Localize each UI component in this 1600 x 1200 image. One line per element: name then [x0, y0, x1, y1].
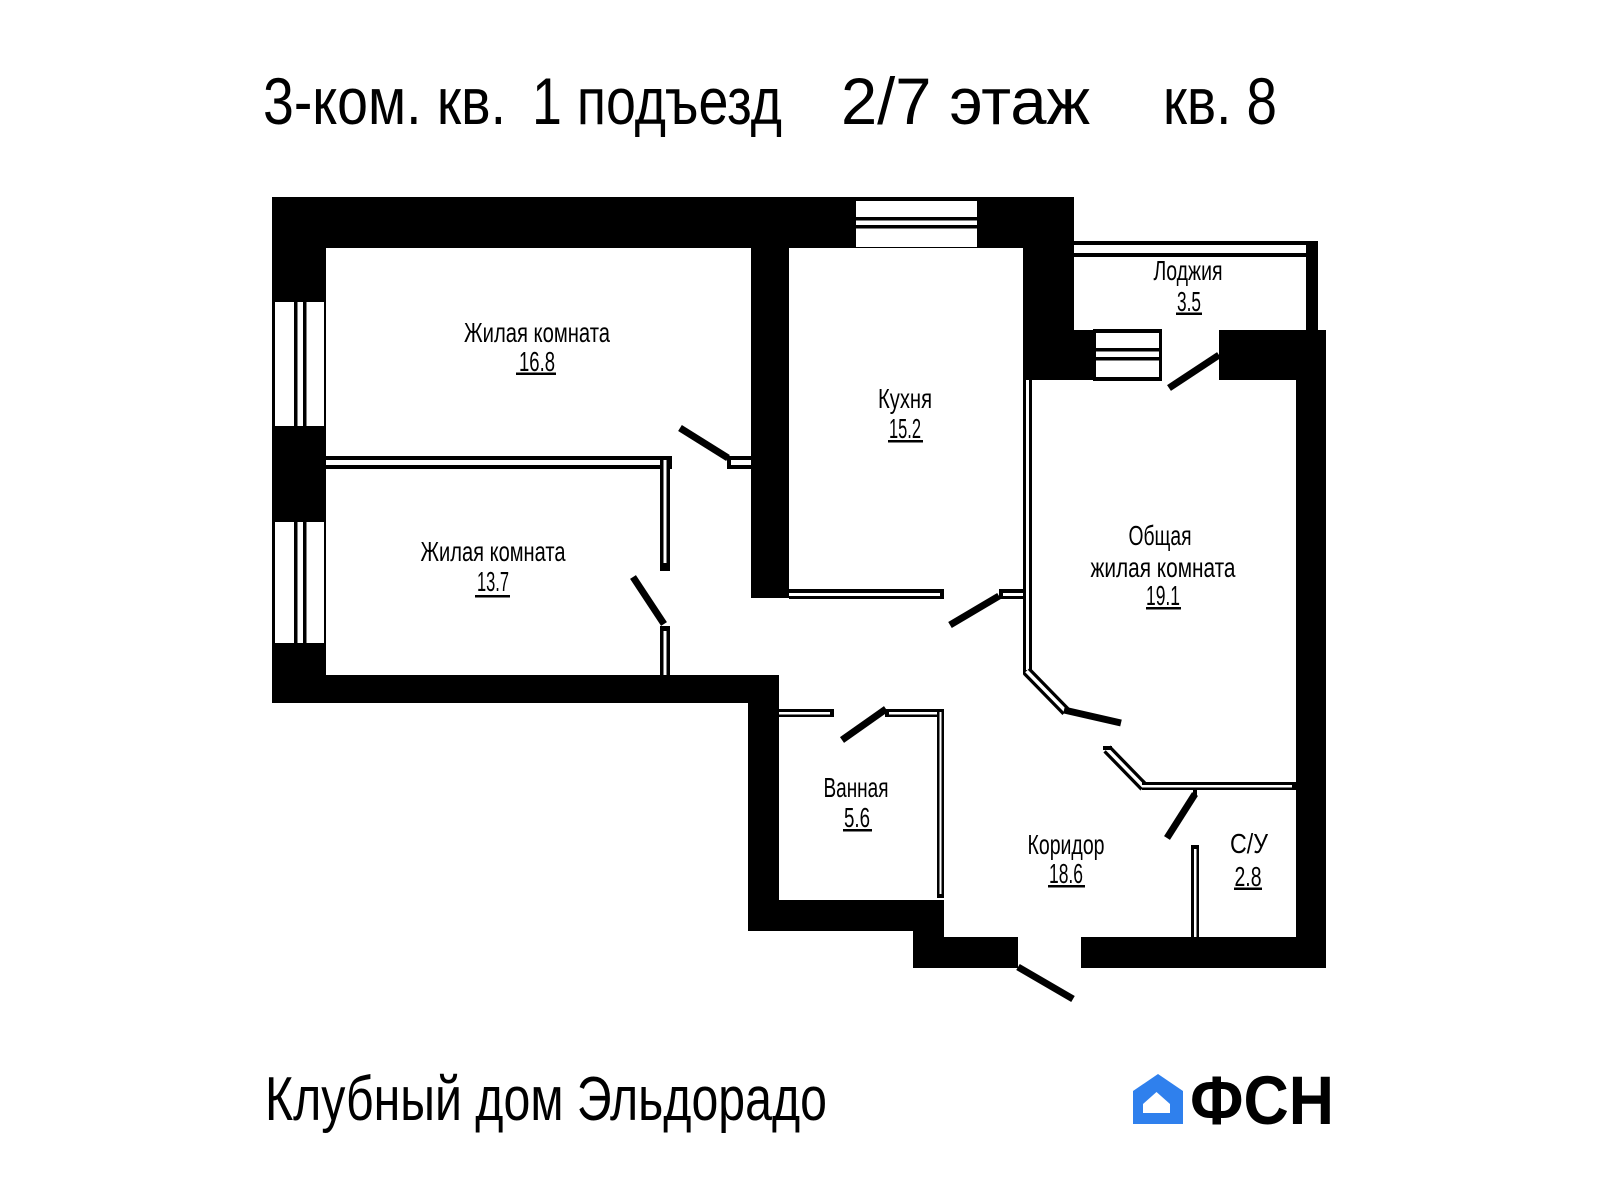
svg-text:1 подъезд: 1 подъезд	[532, 64, 782, 138]
svg-text:Ванная: Ванная	[824, 772, 889, 803]
svg-text:2/7 этаж: 2/7 этаж	[841, 64, 1090, 138]
svg-text:Кухня: Кухня	[878, 383, 932, 414]
svg-text:3.5: 3.5	[1177, 286, 1201, 317]
svg-text:Жилая комната: Жилая комната	[421, 536, 566, 567]
svg-text:3-ком. кв.: 3-ком. кв.	[263, 64, 506, 138]
svg-text:Лоджия: Лоджия	[1154, 255, 1223, 286]
svg-text:ФСН: ФСН	[1190, 1062, 1334, 1139]
svg-text:С/У: С/У	[1230, 828, 1268, 859]
svg-text:16.8: 16.8	[519, 346, 555, 377]
svg-text:жилая комната: жилая комната	[1091, 552, 1236, 583]
svg-text:13.7: 13.7	[477, 566, 509, 597]
svg-text:5.6: 5.6	[844, 802, 870, 833]
svg-text:Общая: Общая	[1129, 520, 1192, 551]
svg-text:19.1: 19.1	[1146, 580, 1180, 611]
svg-text:15.2: 15.2	[889, 413, 921, 444]
svg-text:18.6: 18.6	[1049, 858, 1083, 889]
svg-text:2.8: 2.8	[1235, 861, 1262, 892]
svg-text:Коридор: Коридор	[1028, 829, 1105, 860]
svg-text:Жилая комната: Жилая комната	[464, 317, 610, 348]
svg-text:кв. 8: кв. 8	[1163, 64, 1277, 138]
svg-text:Клубный дом Эльдорадо: Клубный дом Эльдорадо	[265, 1065, 827, 1134]
